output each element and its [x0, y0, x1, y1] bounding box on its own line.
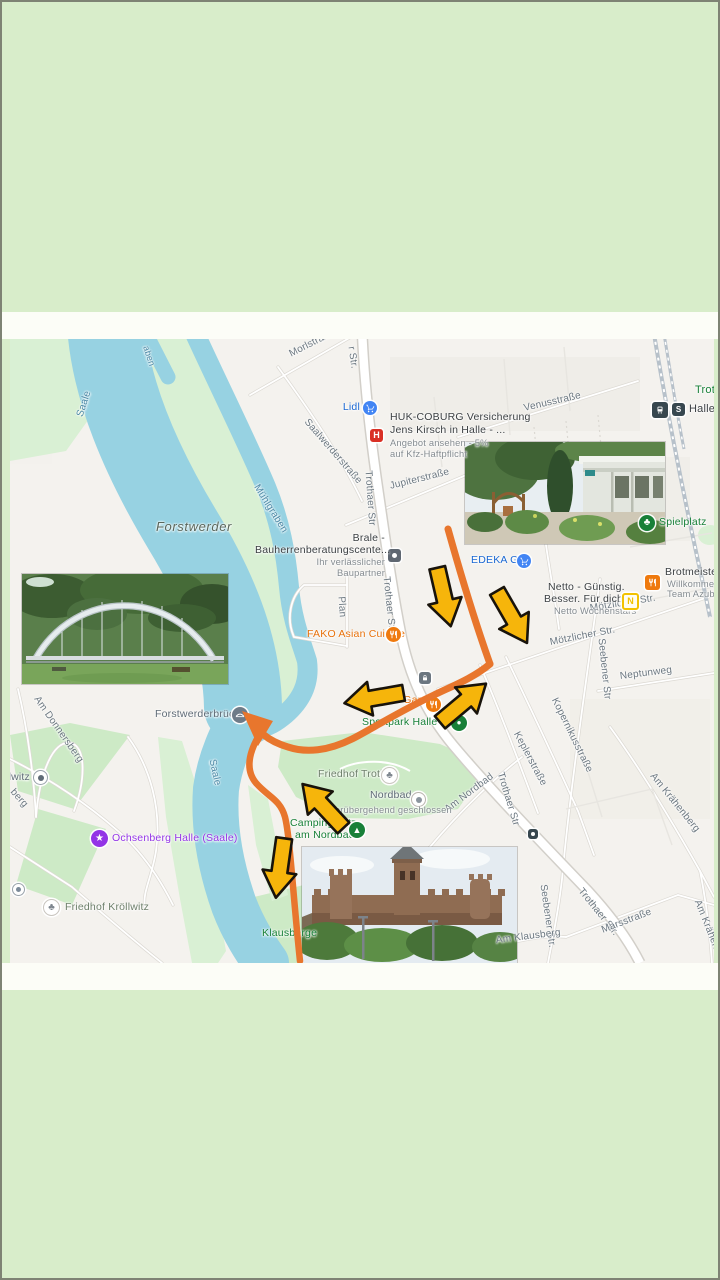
tent-icon[interactable]: ▲ [349, 822, 365, 838]
huk-h-icon[interactable]: H [370, 429, 383, 442]
area-label-forstwerder: Forstwerder [156, 519, 232, 534]
poi-label-netto-line1[interactable]: Netto - Günstig. [548, 581, 625, 593]
garden-clubhouse-photo [465, 442, 665, 544]
restaurant-icon[interactable] [386, 627, 401, 642]
poi-label-lidl[interactable]: Lidl [330, 401, 360, 413]
poi-label-station[interactable]: Halle Wo [689, 403, 714, 415]
poi-label-sportpark[interactable]: Sportpark Halle Nord [362, 716, 464, 728]
poi-label-huk-line1[interactable]: HUK-COBURG Versicherung [390, 411, 531, 423]
restaurant-icon[interactable] [426, 697, 441, 712]
restaurant-icon[interactable] [645, 575, 660, 590]
poi-label-brale-line4: Baupartner [265, 568, 385, 578]
poi-label-huk-line3: Angebot ansehen - 5% [390, 438, 489, 448]
shopping-cart-icon[interactable] [517, 554, 531, 568]
netto-logo-icon[interactable]: N [622, 593, 639, 610]
screenshot-root: Saale Mühlgraben Saale aben Forstwerder … [0, 0, 720, 1280]
poi-label-nordbad-status: vorübergehend geschlossen [330, 805, 452, 815]
street-label-plan: Plan [336, 596, 348, 618]
poi-label-huk-line2[interactable]: Jens Kirsch in Halle - ... [390, 424, 506, 436]
tram-stop-icon[interactable] [528, 829, 538, 839]
poi-label-huk-line4: auf Kfz-Haftpflicht [390, 449, 467, 459]
sports-icon[interactable]: ● [451, 715, 467, 731]
poi-label-spielplatz[interactable]: Spielplatz [659, 516, 707, 528]
castle-ruin-photo [302, 847, 517, 963]
area-label-klausberge: Klausberge [262, 927, 317, 939]
poi-label-brale-line2[interactable]: Bauherrenberatungscente... [255, 544, 385, 556]
shopping-cart-icon[interactable] [363, 401, 377, 415]
tree-icon[interactable]: ♣ [639, 515, 655, 531]
poi-label-brot-line2: Willkommen im [667, 579, 714, 589]
tram-icon[interactable] [652, 402, 668, 418]
venue-star-icon[interactable]: ★ [91, 830, 108, 847]
poi-label-netto-line2[interactable]: Besser. Für dich. [544, 593, 626, 605]
place-dot-icon[interactable] [12, 883, 25, 896]
cemetery-icon[interactable]: ♣ [381, 767, 398, 784]
top-spacer-band [2, 312, 720, 339]
lock-icon [419, 672, 431, 684]
area-label-trotha: Trotha [695, 384, 714, 396]
map-canvas[interactable]: Saale Mühlgraben Saale aben Forstwerder … [10, 339, 714, 963]
poi-label-kroellwitz[interactable]: Kröllwitz [10, 771, 30, 783]
poi-label-brot-line3: Team Azubi! [667, 589, 714, 599]
poi-label-brot-title[interactable]: Brotmeisterei [665, 566, 714, 578]
poi-label-camping-line2[interactable]: am Nordbad [295, 829, 355, 841]
place-dot-icon[interactable] [33, 770, 48, 785]
poi-label-nordbad[interactable]: Nordbad [370, 789, 412, 801]
poi-label-ochsenberg[interactable]: Ochsenberg Halle (Saale) [112, 832, 238, 844]
bottom-spacer-band [2, 963, 720, 990]
bridge-icon[interactable] [232, 707, 248, 723]
poi-label-friedhof-kroellwitz[interactable]: Friedhof Kröllwitz [65, 901, 149, 913]
poi-label-brale-line3: Ihr verlässlicher [265, 557, 385, 567]
arch-footbridge-photo [22, 574, 228, 684]
cemetery-icon[interactable]: ♣ [43, 899, 60, 916]
poi-label-brale-line1[interactable]: Brale - [285, 532, 385, 544]
sbahn-icon[interactable]: S [672, 403, 685, 416]
poi-label-camping-line1[interactable]: Campingplatz [290, 817, 357, 829]
